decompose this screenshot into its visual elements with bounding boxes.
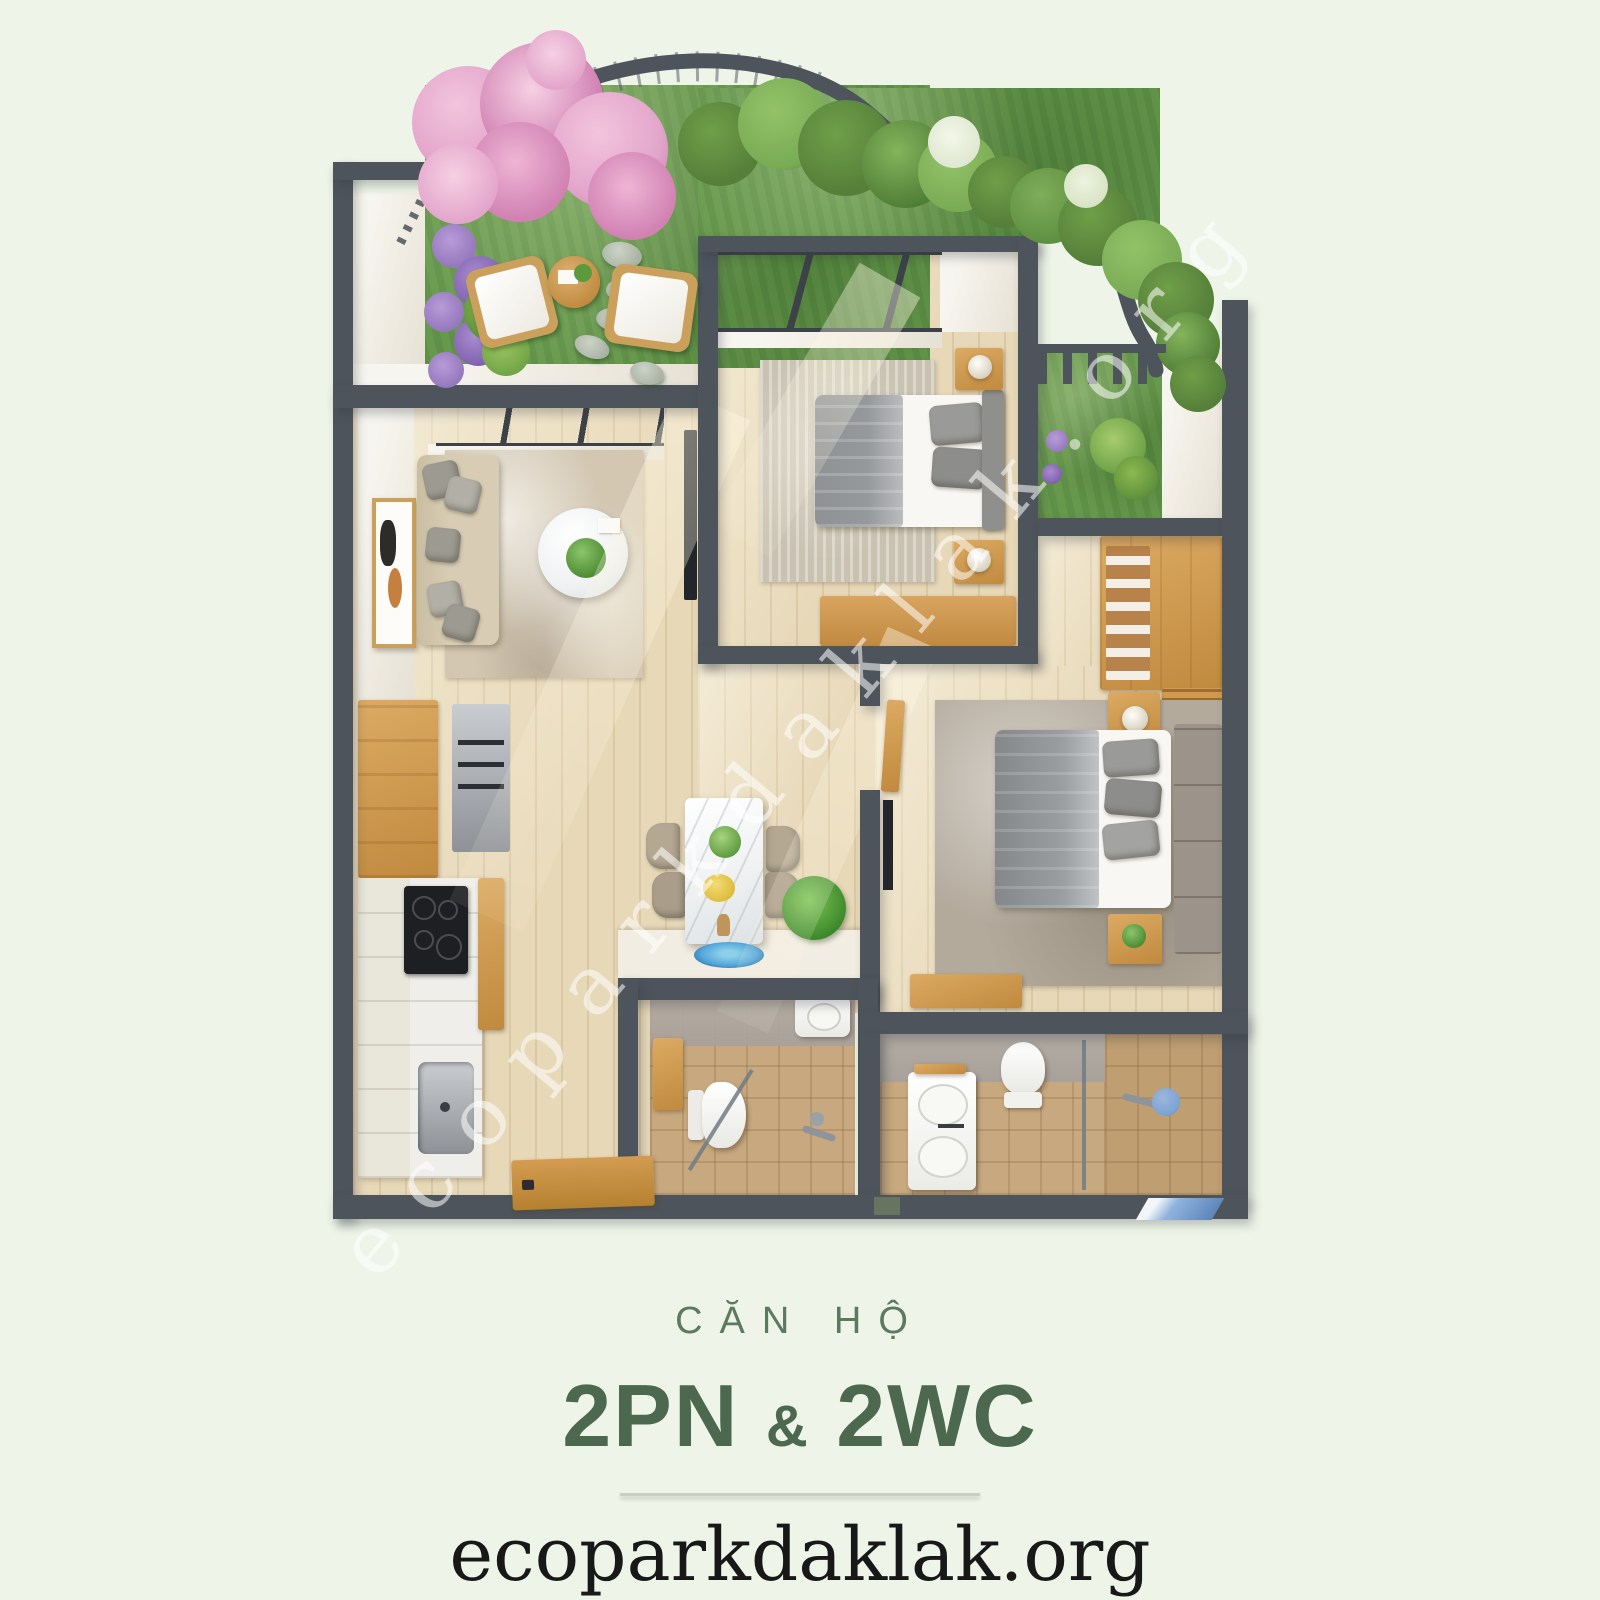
shower-glass2 [1082,1040,1086,1190]
bathroom2-vanity [908,1072,976,1190]
coffee-table-plant [566,538,606,578]
potted-plant [782,876,846,940]
poster: ecoparkdaklak.org CĂN HỘ 2PN & 2WC ecopa… [0,0,1600,1600]
blue-glass-notch [1136,1198,1225,1220]
kitchen-drawers [478,878,504,1030]
bathroom2 [880,1034,1222,1195]
round-rug [694,942,764,968]
bed2-pillow [1102,738,1160,778]
vent-slot [874,1197,900,1215]
caption-block: CĂN HỘ 2PN & 2WC ecoparkdaklak.org [0,1300,1600,1598]
bed2-pillow [1104,778,1163,819]
bathroom1-vanity [795,995,850,1037]
bed2-duvet [995,730,1099,908]
website-url: ecoparkdaklak.org [0,1512,1600,1598]
cooktop [404,886,468,974]
garden-chair [603,262,699,353]
wardrobe [1100,536,1222,690]
caption-kicker: CĂN HỘ [0,1300,1600,1343]
caption-divider [620,1493,980,1496]
entry-door [511,1156,655,1211]
ampersand: & [766,1394,810,1459]
caption-title: 2PN & 2WC [0,1365,1600,1467]
wall-bath2-left [860,1034,880,1195]
bed2-pillow [1101,819,1160,861]
bathroom1 [650,1000,855,1195]
bathroom1-cabinet [653,1038,683,1110]
garden-table [548,256,600,308]
shower-head2 [1152,1088,1180,1116]
kitchen-tall-cabinet [358,700,438,878]
tv-bedroom2 [883,800,893,890]
wall-bath2-top [860,1012,1248,1034]
toilet2 [998,1042,1048,1110]
oven-fridge-stack [452,704,510,852]
bed2-bench [910,974,1022,1008]
shower-fixture1 [802,1125,836,1142]
bed2-headboard [1174,724,1222,954]
wall-bath1-top [618,978,878,1000]
